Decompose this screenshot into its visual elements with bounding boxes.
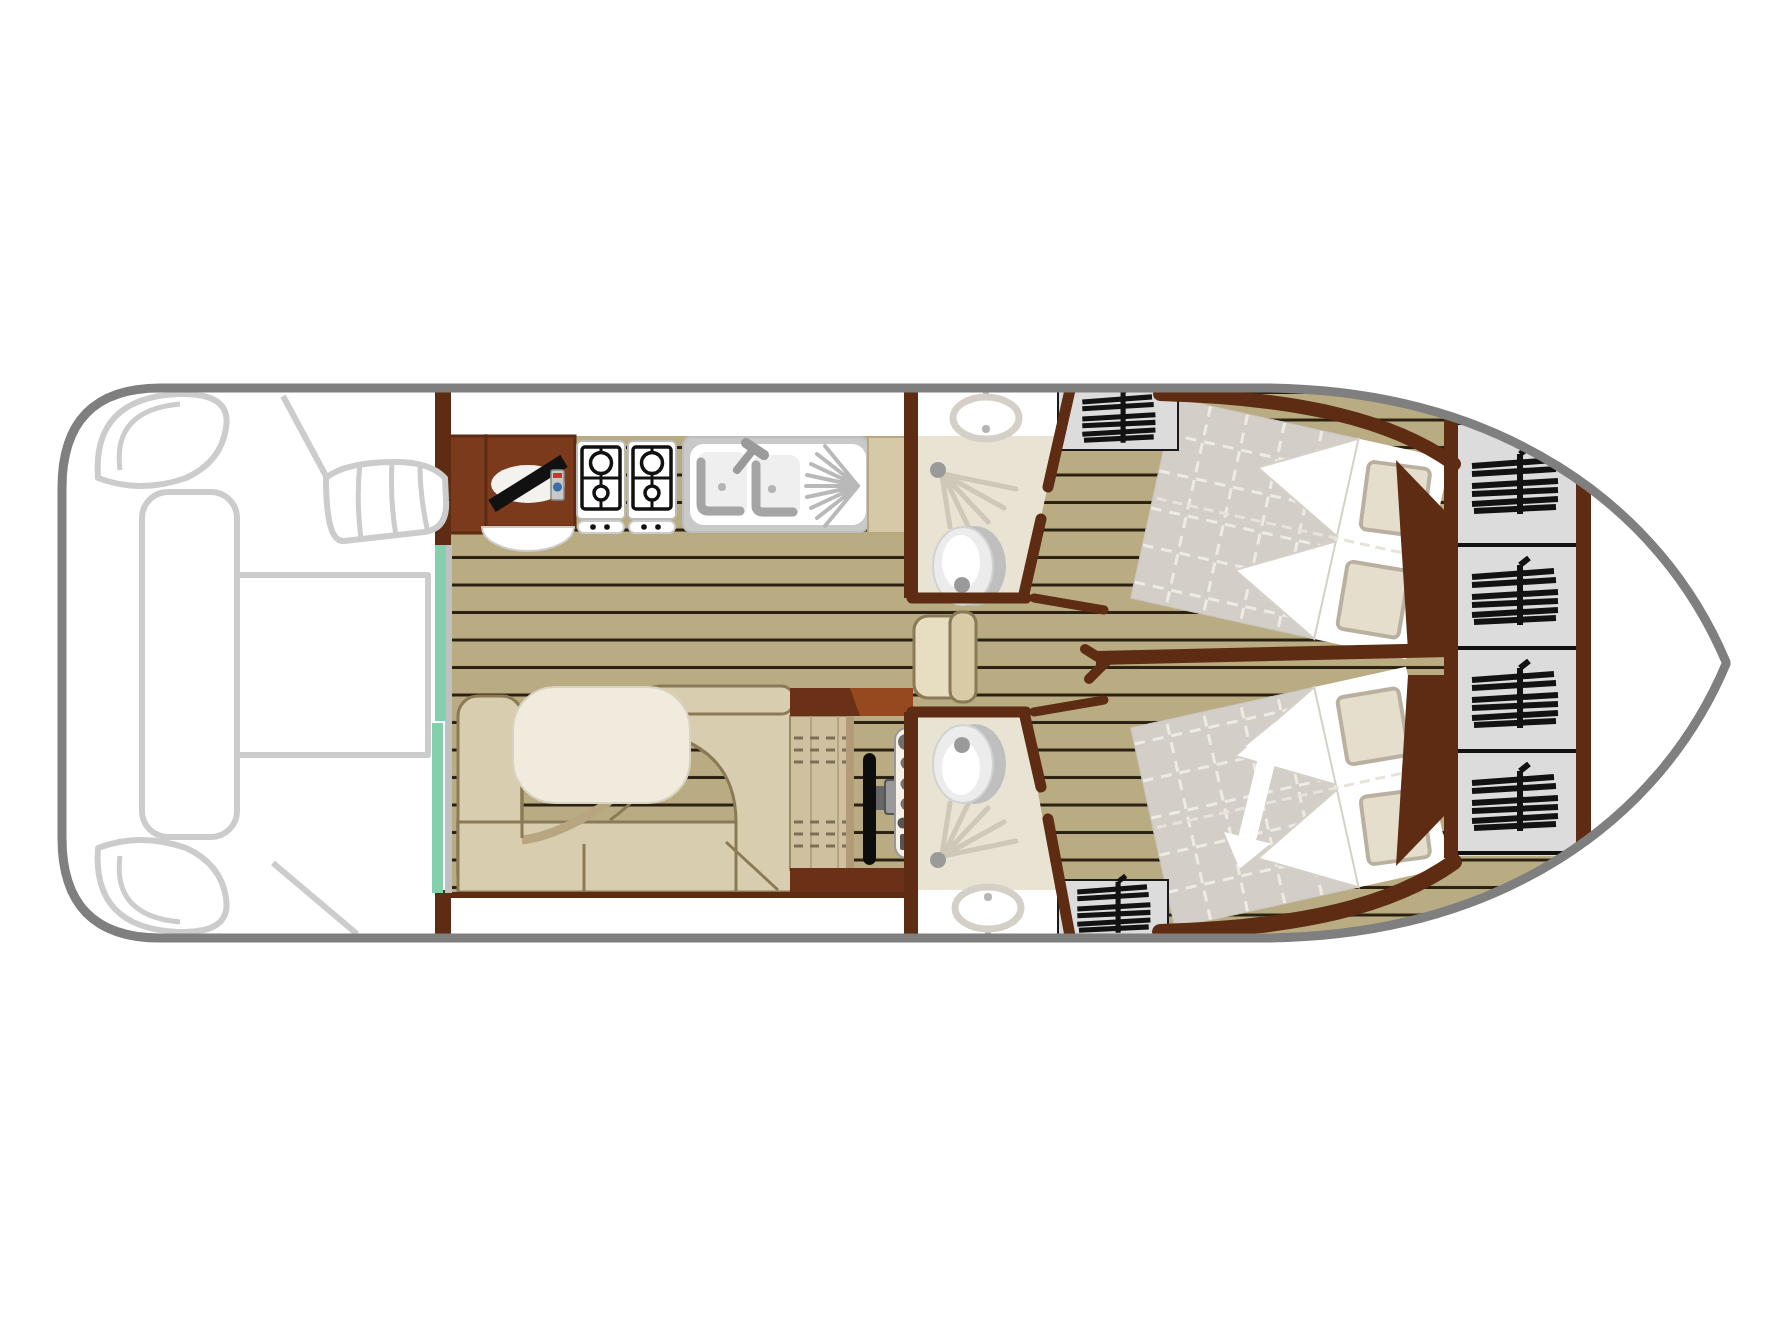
door-panel (432, 723, 443, 893)
bow-lockers (1458, 420, 1576, 856)
dinette-table (513, 687, 690, 803)
boat-floor-plan (0, 0, 1776, 1332)
chart-desk (790, 716, 854, 870)
helm-seat (914, 612, 976, 702)
gas-hob-icon (577, 441, 625, 533)
saloon (458, 686, 794, 892)
bow-locker-wall-left (1444, 415, 1458, 858)
toilet-icon (933, 724, 1006, 804)
gas-hob-icon (628, 441, 676, 533)
door-track (445, 545, 452, 893)
bath-bottom-wall-left (904, 712, 918, 938)
counter-end (868, 437, 906, 533)
side-deck-top (446, 388, 906, 436)
deck-table (237, 575, 428, 755)
double-sink-icon (683, 437, 868, 532)
galley-bath-wall (904, 388, 918, 598)
bow-locker-wall-right (1576, 430, 1591, 900)
side-bench (142, 492, 237, 837)
deck-steps (326, 462, 446, 541)
door-panel (435, 545, 446, 721)
saloon-bottom-wall (435, 892, 910, 898)
entry-sliding-door[interactable] (432, 545, 452, 893)
